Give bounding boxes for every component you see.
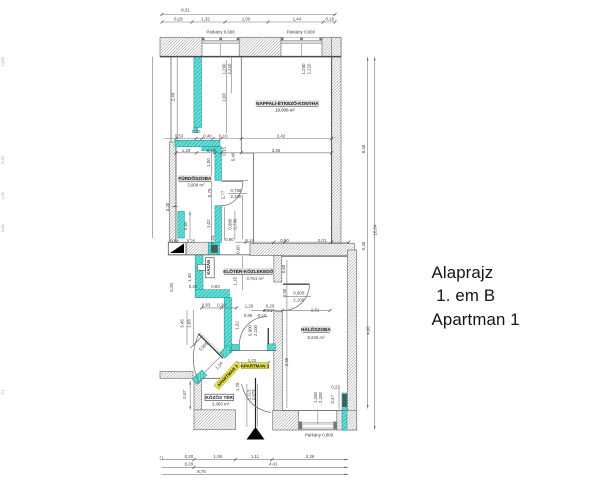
svg-text:1,11: 1,11 <box>251 454 260 459</box>
svg-text:2,77: 2,77 <box>220 190 225 199</box>
svg-text:1,08: 1,08 <box>213 454 222 459</box>
svg-text:0,90: 0,90 <box>280 238 289 243</box>
svg-text:4,761 m²: 4,761 m² <box>246 276 264 281</box>
svg-text:0,90: 0,90 <box>282 288 287 297</box>
svg-text:5,46: 5,46 <box>231 152 236 161</box>
svg-text:0,83: 0,83 <box>202 303 211 308</box>
svg-text:0,15: 0,15 <box>221 146 226 155</box>
svg-text:4,41: 4,41 <box>269 462 278 467</box>
svg-text:2,01: 2,01 <box>318 238 327 243</box>
svg-text:1,290: 1,290 <box>1 57 5 67</box>
svg-text:8,46: 8,46 <box>361 144 366 153</box>
svg-text:1,78: 1,78 <box>235 382 240 391</box>
svg-text:2,08: 2,08 <box>222 93 227 102</box>
svg-text:0,29: 0,29 <box>174 16 183 21</box>
svg-text:-0,15: -0,15 <box>256 313 267 318</box>
svg-text:4,60: 4,60 <box>366 326 371 335</box>
svg-text:3,460 m²: 3,460 m² <box>212 402 230 407</box>
svg-text:0,60: 0,60 <box>183 221 188 230</box>
svg-text:0,20: 0,20 <box>187 238 196 243</box>
svg-text:1,32: 1,32 <box>201 16 210 21</box>
svg-text:0,47: 0,47 <box>330 394 335 403</box>
svg-text:0,20: 0,20 <box>1 156 5 163</box>
svg-text:0,40: 0,40 <box>203 133 212 138</box>
svg-text:APARTMAN 1: APARTMAN 1 <box>241 363 270 368</box>
svg-text:1,32: 1,32 <box>234 321 239 330</box>
svg-text:0,84: 0,84 <box>170 238 179 243</box>
svg-text:0,30: 0,30 <box>361 241 366 250</box>
svg-text:0,90: 0,90 <box>225 237 234 242</box>
svg-text:2,26: 2,26 <box>306 454 315 459</box>
svg-text:0,60: 0,60 <box>1 224 5 231</box>
svg-text:0,10: 0,10 <box>207 148 216 153</box>
svg-text:2,100: 2,100 <box>293 298 305 303</box>
svg-text:2,790: 2,790 <box>233 218 238 230</box>
svg-text:Párkány 0,688: Párkány 0,688 <box>206 30 235 35</box>
svg-text:0,16: 0,16 <box>326 16 335 21</box>
svg-text:0,15: 0,15 <box>210 235 215 244</box>
svg-text:0,60: 0,60 <box>235 245 240 254</box>
svg-text:2,100: 2,100 <box>231 194 243 199</box>
svg-text:Párkány 0,900: Párkány 0,900 <box>287 30 316 35</box>
svg-text:1,00: 1,00 <box>242 16 251 21</box>
svg-text:0,20: 0,20 <box>217 303 226 308</box>
svg-text:1,29: 1,29 <box>245 304 254 309</box>
svg-text:1,02: 1,02 <box>1 192 5 199</box>
svg-text:8,31: 8,31 <box>181 7 190 12</box>
svg-text:FÜRDŐSZOBA: FÜRDŐSZOBA <box>178 175 212 181</box>
svg-text:0,1: 0,1 <box>1 389 5 394</box>
svg-text:0,10: 0,10 <box>219 133 228 138</box>
svg-text:1,02: 1,02 <box>206 219 211 228</box>
svg-text:0,980: 0,980 <box>227 218 232 230</box>
svg-text:(1: (1 <box>160 456 164 461</box>
svg-text:0,23: 0,23 <box>331 384 340 389</box>
svg-text:0,53: 0,53 <box>175 133 184 138</box>
svg-text:0,20: 0,20 <box>169 282 174 291</box>
svg-text:1,20: 1,20 <box>182 148 191 153</box>
svg-text:0,20: 0,20 <box>189 284 198 289</box>
svg-text:HÁLÓSZOBA: HÁLÓSZOBA <box>301 325 331 332</box>
svg-text:0,14: 0,14 <box>245 238 254 243</box>
svg-text:1,290: 1,290 <box>301 63 306 75</box>
svg-text:0,900: 0,900 <box>293 291 305 296</box>
svg-text:0,900: 0,900 <box>247 324 252 336</box>
svg-text:3,46: 3,46 <box>180 319 185 328</box>
svg-text:1,00: 1,00 <box>206 158 211 167</box>
svg-text:NAPPALI-ÉTKEZŐ-KONYHA: NAPPALI-ÉTKEZŐ-KONYHA <box>256 99 319 106</box>
svg-text:3,42: 3,42 <box>277 133 286 138</box>
svg-text:KAZÁN: KAZÁN <box>206 260 211 275</box>
svg-text:2,100: 2,100 <box>253 324 258 336</box>
svg-text:2,979: 2,979 <box>251 389 256 401</box>
svg-text:1,66: 1,66 <box>186 319 191 328</box>
svg-text:0,83: 0,83 <box>211 284 220 289</box>
svg-text:0,96: 0,96 <box>244 313 253 318</box>
svg-text:0,756: 0,756 <box>231 188 243 193</box>
svg-text:2,90: 2,90 <box>284 357 289 366</box>
svg-text:0,20: 0,20 <box>185 454 194 459</box>
svg-text:9,246 m²: 9,246 m² <box>307 335 325 340</box>
svg-text:0,20: 0,20 <box>263 308 272 313</box>
svg-text:2,49: 2,49 <box>171 92 176 101</box>
svg-text:2,210: 2,210 <box>227 63 232 75</box>
svg-text:0,20: 0,20 <box>185 462 194 467</box>
svg-text:ELŐTÉR-KÖZLEKEDŐ: ELŐTÉR-KÖZLEKEDŐ <box>223 267 273 274</box>
svg-text:KÖZÖS TÉR: KÖZÖS TÉR <box>206 393 234 400</box>
svg-text:1,10: 1,10 <box>232 276 237 285</box>
svg-text:8,75: 8,75 <box>197 469 206 474</box>
svg-text:10,04: 10,04 <box>372 224 377 236</box>
svg-text:2,200: 2,200 <box>318 391 323 403</box>
svg-text:1,290: 1,290 <box>221 63 226 75</box>
svg-text:0,20: 0,20 <box>165 202 170 211</box>
svg-text:19,608 m²: 19,608 m² <box>275 108 295 113</box>
svg-text:2,61: 2,61 <box>311 307 320 312</box>
svg-text:0,60: 0,60 <box>281 264 286 273</box>
svg-text:1,30: 1,30 <box>187 273 192 282</box>
svg-text:0,75: 0,75 <box>207 188 212 197</box>
svg-text:2,210: 2,210 <box>307 63 312 75</box>
svg-text:1,22: 1,22 <box>248 358 257 363</box>
svg-text:0,20: 0,20 <box>192 129 201 134</box>
svg-text:1,44: 1,44 <box>293 16 302 21</box>
svg-text:3,908 m²: 3,908 m² <box>187 182 205 187</box>
svg-text:0,87: 0,87 <box>182 389 187 398</box>
svg-text:3,36: 3,36 <box>272 148 281 153</box>
svg-text:Párkány 0,800: Párkány 0,800 <box>305 432 334 437</box>
